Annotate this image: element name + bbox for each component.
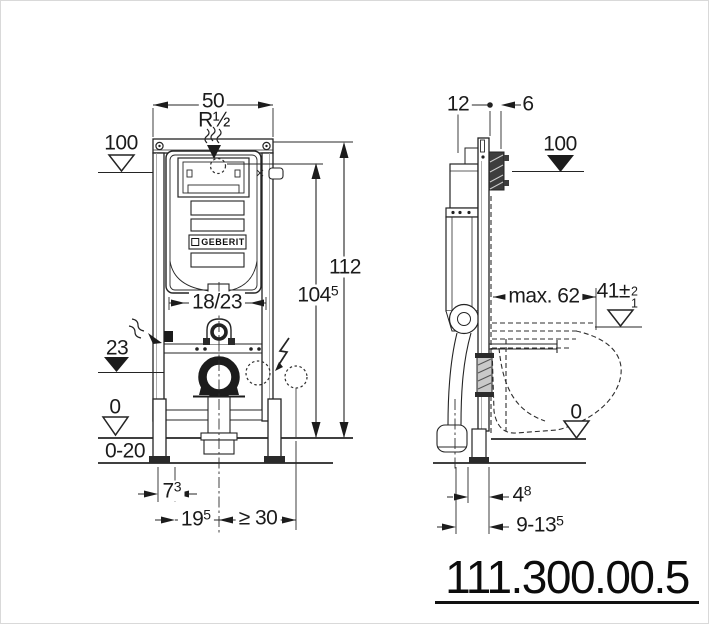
dim-water-connection: R½	[198, 110, 230, 131]
wall-bracket	[489, 152, 509, 190]
meter-mark-front-triangle-icon	[98, 155, 153, 173]
drawing-linework	[1, 1, 709, 624]
foot-plate-side	[469, 457, 489, 463]
seat-height-triangle-icon	[595, 310, 642, 327]
dim-total-height: 112	[326, 257, 364, 278]
dim-bracket-depth: 6	[522, 94, 533, 115]
frame-leg-right	[268, 399, 281, 457]
dim-lines-bottom-side	[437, 467, 509, 534]
floor-level-side-triangle-icon	[564, 421, 589, 438]
geberit-logo-square-icon	[191, 238, 199, 246]
floor-level-front-triangle-icon	[103, 417, 128, 435]
installation-frame-technical-drawing: 50 R½ 100 112 1045 18/23 23 0 0-20 73 19…	[0, 0, 709, 624]
dim-supply-height-value: 104	[297, 284, 331, 307]
meter-mark-side-label: 100	[543, 134, 577, 155]
fixing-rail	[164, 344, 262, 353]
dim-seat-height: 41±21	[597, 281, 638, 310]
dim-foot-offset-sup: 3	[174, 479, 182, 495]
meter-mark-side-triangle-icon	[512, 155, 584, 172]
dim-wall-distance-value: 9-13	[516, 514, 556, 537]
dim-foot-offset-value: 7	[163, 480, 174, 503]
dim-foot-depth-sup: 8	[524, 483, 532, 499]
dim-supply-height: 1045	[294, 285, 341, 306]
dim-wall-distance: 9-135	[516, 515, 564, 536]
dim-foot-depth: 48	[513, 485, 532, 506]
cistern-side-profile	[437, 148, 479, 471]
dim-foot-offset: 73	[160, 481, 185, 502]
dim-outlet-to-foot-value: 19	[181, 508, 203, 531]
threaded-rod	[475, 353, 494, 397]
foot-plate-left	[149, 456, 170, 463]
dim-side-clearance: ≥ 30	[236, 508, 281, 529]
toilet-bowl-outline	[492, 323, 621, 433]
electrical-connection-icon	[275, 338, 289, 371]
water-supply-side-entry-icon	[129, 319, 173, 344]
dim-outlet-to-foot-sup: 5	[203, 507, 211, 523]
meter-mark-front-label: 100	[104, 133, 138, 154]
dim-flush-pipe-offset: 18/23	[189, 292, 245, 313]
article-number: 111.300.00.5	[435, 554, 699, 604]
dim-frame-depth: 12	[444, 94, 472, 115]
side-view	[433, 102, 642, 535]
frame-leg-left	[153, 399, 166, 457]
geberit-logo: GEBERIT	[191, 237, 245, 247]
dim-max-bowl-depth: max. 62	[505, 286, 582, 307]
inlet-bend	[437, 425, 467, 452]
floor-level-front-label: 0	[109, 397, 120, 418]
front-view	[98, 102, 353, 536]
dim-outlet-to-foot: 195	[178, 509, 214, 530]
geberit-logo-text: GEBERIT	[201, 237, 245, 247]
foot-plate-right	[264, 456, 285, 463]
frame-leg-side	[472, 429, 486, 459]
dim-foot-depth-value: 4	[513, 484, 524, 507]
dim-seat-height-value: 41±	[597, 280, 630, 303]
dim-supply-height-sup: 5	[331, 283, 339, 299]
floor-level-side-label: 0	[570, 402, 581, 423]
dim-outlet-height: 23	[106, 338, 128, 359]
connection-box-circle-icon	[285, 366, 307, 388]
dim-wall-distance-sup: 5	[556, 513, 564, 529]
dim-screed-range: 0-20	[105, 441, 145, 462]
dim-seat-height-tol-minus: 1	[631, 298, 637, 310]
